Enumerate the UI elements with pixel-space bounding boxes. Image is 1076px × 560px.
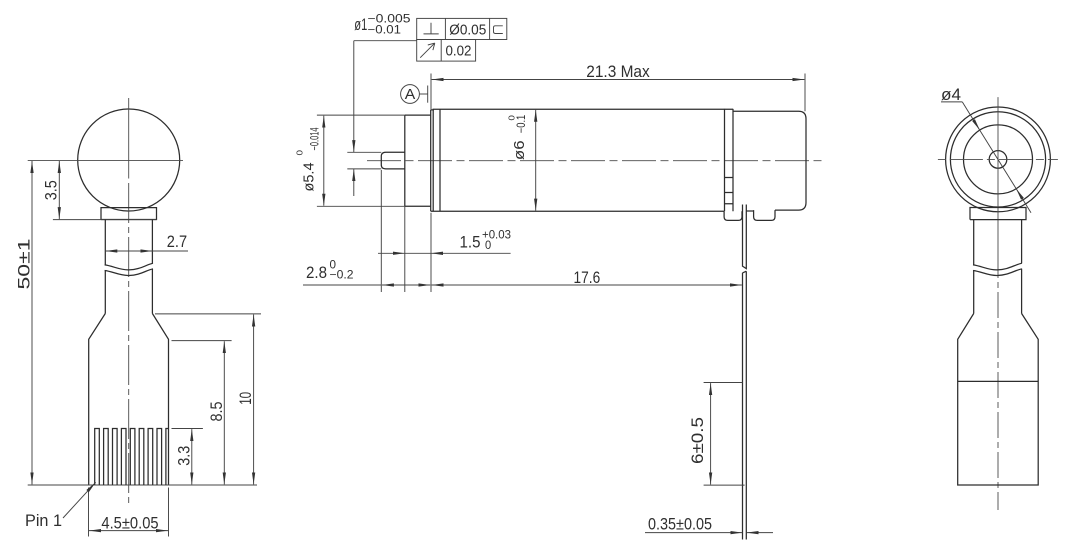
svg-text:17.6: 17.6: [574, 268, 601, 287]
svg-text:2.8: 2.8: [306, 263, 327, 282]
svg-text:10: 10: [236, 392, 255, 405]
svg-text:8.5: 8.5: [207, 402, 226, 422]
svg-text:ø4: ø4: [941, 85, 961, 104]
svg-text:0: 0: [295, 150, 305, 156]
svg-text:3.5: 3.5: [42, 180, 61, 200]
svg-text:1.5: 1.5: [460, 233, 481, 252]
svg-text:−0.01: −0.01: [368, 25, 402, 37]
svg-text:21.3 Max: 21.3 Max: [586, 62, 650, 81]
svg-text:−0.005: −0.005: [368, 13, 411, 25]
svg-text:3.3: 3.3: [174, 446, 193, 466]
svg-text:ø5.4: ø5.4: [301, 163, 318, 192]
svg-text:4.5±0.05: 4.5±0.05: [101, 514, 158, 533]
svg-text:ø1: ø1: [354, 15, 367, 34]
svg-text:−0.014: −0.014: [310, 127, 322, 150]
svg-text:0: 0: [507, 115, 517, 121]
svg-text:Ø0.05: Ø0.05: [449, 21, 486, 38]
svg-text:0.35±0.05: 0.35±0.05: [648, 514, 712, 533]
svg-text:0.02: 0.02: [446, 44, 472, 60]
svg-text:Pin 1: Pin 1: [25, 511, 62, 530]
svg-text:50±1: 50±1: [15, 239, 34, 290]
svg-text:ø6: ø6: [511, 140, 528, 160]
svg-text:−0.1: −0.1: [516, 115, 528, 134]
svg-text:6±0.5: 6±0.5: [688, 417, 707, 464]
svg-text:2.7: 2.7: [167, 232, 187, 251]
svg-text:0: 0: [485, 240, 491, 252]
svg-text:A: A: [405, 87, 416, 103]
svg-text:−0.2: −0.2: [330, 270, 354, 282]
